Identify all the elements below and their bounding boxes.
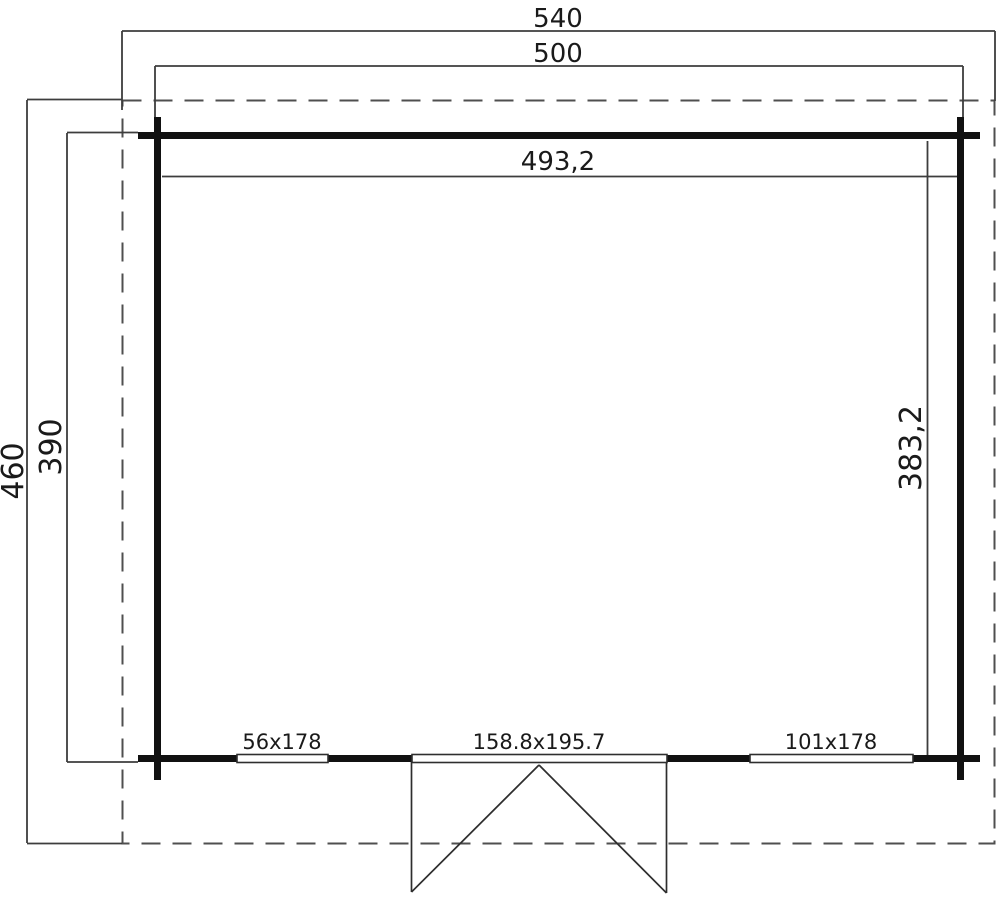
floor-plan-drawing: 540 500 460 390 493,2 [0,0,1000,899]
dimension-outer-width: 500 [155,39,963,117]
dim-label-inner-depth: 383,2 [894,405,929,491]
door-swing-right [539,765,667,893]
dimension-inner-width: 493,2 [162,147,957,177]
dim-label-500: 500 [533,39,583,69]
left-window-label: 56x178 [242,730,321,754]
dim-label-inner-width: 493,2 [521,147,595,177]
dim-label-390: 390 [34,418,69,475]
walls [138,117,980,780]
door-frame-symbol [412,755,667,763]
left-window-symbol [237,755,328,763]
door-swing-left [412,765,540,892]
floor-plan-canvas: 540 500 460 390 493,2 [0,0,1000,899]
dim-label-540: 540 [533,4,583,34]
openings: 56x178 158.8x195.7 101x178 [237,730,913,893]
dim-label-460: 460 [0,442,31,499]
dimension-inner-depth: 383,2 [894,141,929,755]
right-window-symbol [750,755,913,763]
door-label: 158.8x195.7 [473,730,606,754]
right-window-label: 101x178 [785,730,878,754]
